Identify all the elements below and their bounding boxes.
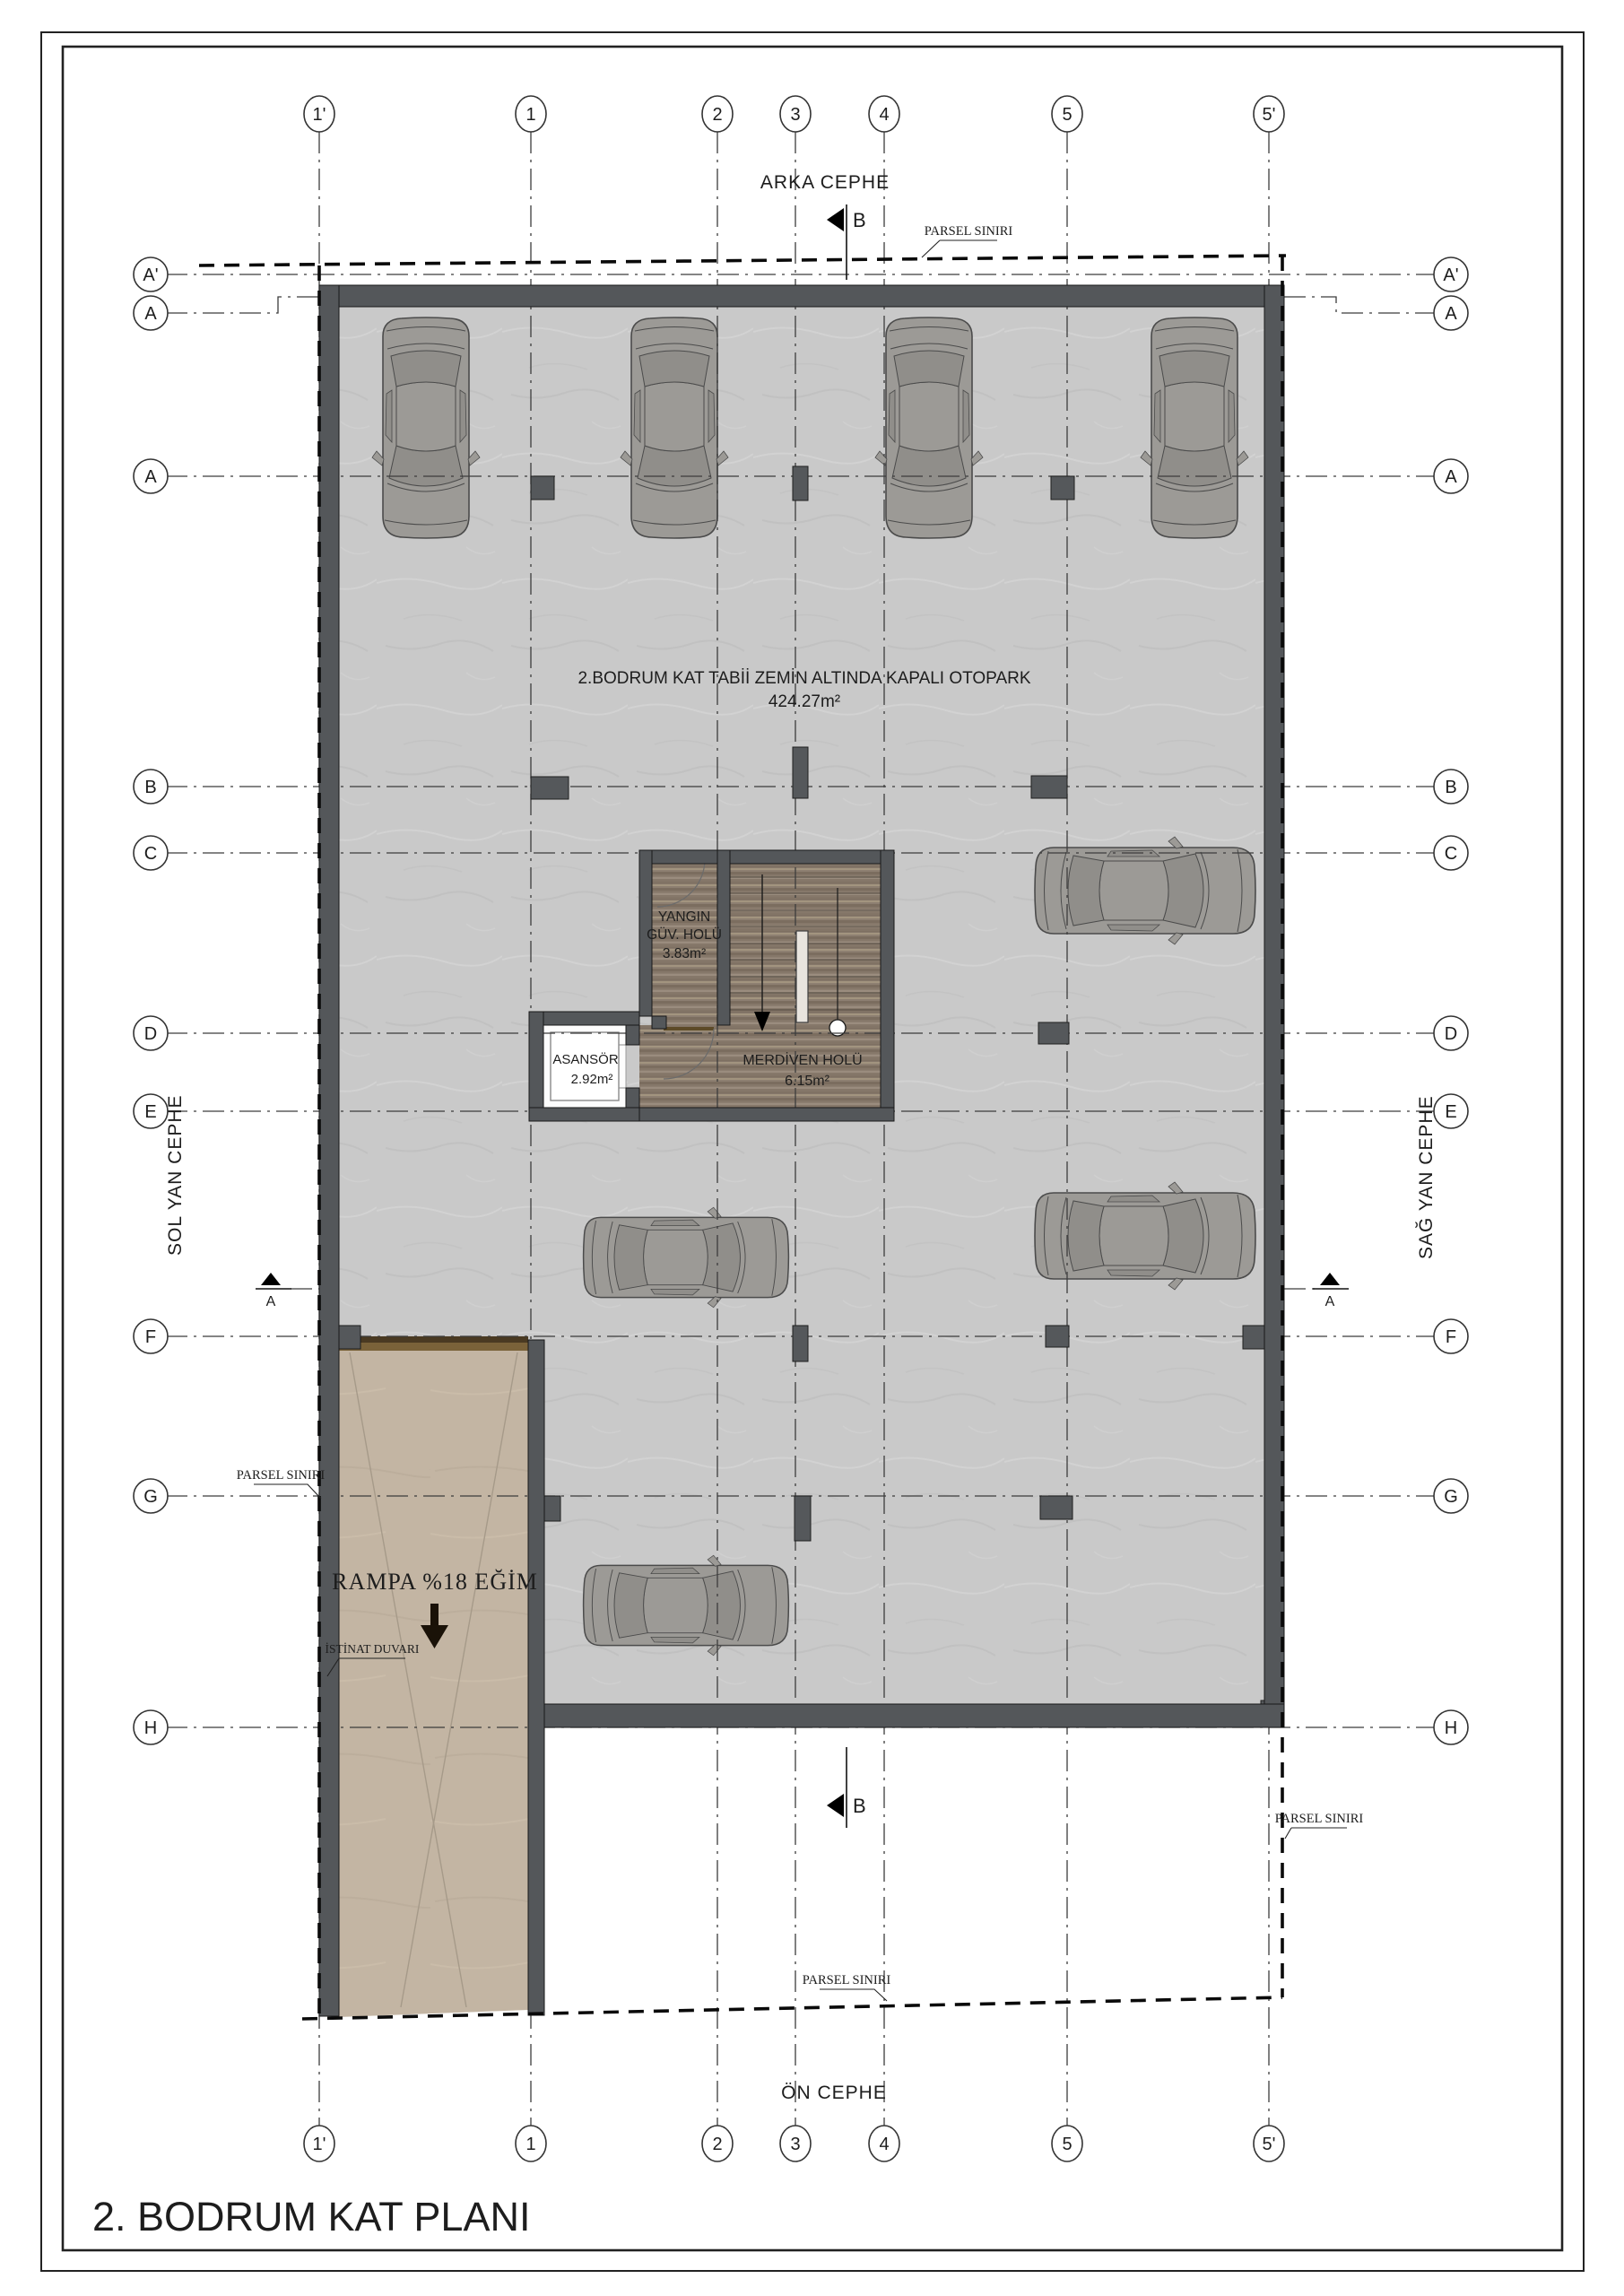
drawing-sheet: 1' 1 2 3 4 5 5' 1' 1 2 3 4 5 5' A' A A B…	[0, 0, 1624, 2296]
grid-label: 1	[525, 2135, 535, 2154]
sheet-title: 2. BODRUM KAT PLANI	[92, 2194, 530, 2239]
room-name: MERDİVEN HOLÜ	[743, 1051, 862, 1068]
yangin-floor	[652, 864, 717, 1025]
section-label: A	[266, 1294, 276, 1309]
grid-label: 3	[790, 2135, 800, 2154]
ramp-inner-wall	[528, 1340, 544, 2015]
grid-label: 5	[1062, 2135, 1072, 2154]
grid-bubble: 5'	[1254, 2126, 1284, 2161]
room-area: 3.83m²	[663, 946, 706, 961]
leader-text: PARSEL SINIRI	[237, 1468, 326, 1483]
facade-label-left: SOL YAN CEPHE	[165, 1094, 186, 1256]
section-marker-b-top: B	[827, 204, 866, 280]
grid-bubble: 2	[702, 96, 733, 132]
grid-label: B	[144, 778, 156, 797]
room-name: ASANSÖR	[552, 1051, 619, 1067]
grid-bubbles-left: A' A A B C D E F G H	[134, 257, 168, 1744]
grid-bubble: A'	[1434, 257, 1468, 291]
room-area: 6.15m²	[785, 1074, 829, 1089]
leader-text: PARSEL SINIRI	[925, 224, 1013, 239]
grid-bubble: 4	[869, 96, 899, 132]
grid-bubble: G	[134, 1479, 168, 1513]
grid-label: 5	[1062, 105, 1072, 125]
otopark-area: 424.27m²	[769, 692, 840, 711]
grid-bubble: A'	[134, 257, 168, 291]
grid-bubble: 4	[869, 2126, 899, 2161]
grid-label: G	[143, 1487, 158, 1507]
grid-bubble: 3	[780, 96, 811, 132]
grid-label: A'	[143, 265, 158, 285]
section-label: B	[853, 209, 866, 231]
grid-bubble: G	[1434, 1479, 1468, 1513]
parsel-label-bottom: PARSEL SINIRI	[803, 1973, 891, 2001]
grid-bubble: 1'	[304, 96, 334, 132]
grid-label: G	[1444, 1487, 1458, 1507]
grid-bubble: F	[134, 1319, 168, 1353]
grid-bubble: D	[1434, 1016, 1468, 1050]
car	[584, 1555, 789, 1656]
grid-bubble: A	[134, 459, 168, 493]
grid-label: A'	[1443, 265, 1458, 285]
grid-label: A	[1445, 304, 1457, 324]
car	[372, 317, 480, 538]
stair-rail	[796, 931, 808, 1022]
grid-label: C	[1445, 844, 1457, 864]
section-label: A	[1325, 1294, 1335, 1309]
grid-label: C	[144, 844, 157, 864]
floor-plan-svg: 1' 1 2 3 4 5 5' 1' 1 2 3 4 5 5' A' A A B…	[0, 0, 1624, 2296]
leader-text: İSTİNAT DUVARI	[326, 1642, 420, 1656]
leader-text: PARSEL SINIRI	[1275, 1812, 1364, 1826]
grid-bubble: 3	[780, 2126, 811, 2161]
wall-top	[319, 285, 1284, 307]
grid-bubble: E	[1434, 1094, 1468, 1128]
car	[584, 1207, 789, 1308]
section-label: B	[853, 1795, 866, 1817]
parsel-label-right: PARSEL SINIRI	[1275, 1812, 1364, 1839]
wall-left	[319, 285, 339, 2016]
section-arrow-icon	[261, 1273, 281, 1285]
grid-label: 1'	[313, 2135, 326, 2154]
section-marker-b-bottom: B	[827, 1747, 866, 1828]
grid-bubble: A	[134, 296, 168, 330]
car	[875, 317, 983, 538]
car	[1141, 317, 1248, 538]
grid-bubble: H	[134, 1710, 168, 1744]
grid-bubble: 5	[1052, 96, 1082, 132]
facade-label-back: ARKA CEPHE	[760, 172, 890, 193]
grid-label: A	[1445, 467, 1457, 487]
grid-bubble: A	[1434, 296, 1468, 330]
parsel-label-top: PARSEL SINIRI	[922, 224, 1012, 257]
section-arrow-icon	[1320, 1273, 1340, 1285]
grid-label: 4	[879, 2135, 889, 2154]
grid-bubble: B	[1434, 770, 1468, 804]
grid-label: 1'	[313, 105, 326, 125]
grid-label: 1	[525, 105, 535, 125]
grid-label: 2	[712, 105, 722, 125]
leader-text: PARSEL SINIRI	[803, 1973, 891, 1987]
grid-label: A	[144, 467, 157, 487]
grid-bubbles-bottom: 1' 1 2 3 4 5 5'	[304, 2126, 1284, 2161]
car	[621, 317, 728, 538]
grid-label: E	[144, 1102, 156, 1122]
room-name: YANGIN	[658, 909, 710, 925]
facade-label-front: ÖN CEPHE	[781, 2083, 887, 2103]
grid-label: B	[1445, 778, 1456, 797]
grid-bubble: 5	[1052, 2126, 1082, 2161]
grid-bubble: C	[134, 836, 168, 870]
grid-label: F	[145, 1327, 156, 1347]
grid-bubble: 1	[516, 2126, 546, 2161]
grid-label: 5'	[1263, 2135, 1276, 2154]
grid-label: 5'	[1263, 105, 1276, 125]
grid-label: 2	[712, 2135, 722, 2154]
room-name: GÜV. HOLÜ	[647, 926, 722, 943]
grid-label: A	[144, 304, 157, 324]
facade-label-right: SAĞ YAN CEPHE	[1416, 1095, 1437, 1259]
room-area: 2.92m²	[571, 1072, 613, 1087]
grid-label: D	[1445, 1024, 1457, 1044]
grid-label: F	[1446, 1327, 1456, 1347]
grid-bubbles-right: A' A A B C D E F G H	[1434, 257, 1468, 1744]
ramp	[339, 1336, 528, 2017]
grid-bubble: A	[1434, 459, 1468, 493]
grid-label: H	[144, 1718, 157, 1738]
grid-label: H	[1445, 1718, 1457, 1738]
wall-right	[1264, 285, 1284, 1727]
grid-bubble: 1	[516, 96, 546, 132]
section-arrow-icon	[827, 208, 844, 231]
grid-bubble: 1'	[304, 2126, 334, 2161]
grid-bubble: C	[1434, 836, 1468, 870]
grid-bubbles-top: 1' 1 2 3 4 5 5'	[304, 96, 1284, 132]
section-marker-a-right: A	[1313, 1273, 1349, 1309]
grid-bubble: H	[1434, 1710, 1468, 1744]
section-marker-a-left: A	[256, 1273, 291, 1309]
ramp-edge-band	[339, 1336, 528, 1343]
grid-label: E	[1445, 1102, 1456, 1122]
wall-bottom	[528, 1704, 1284, 1727]
grid-label: 4	[879, 105, 889, 125]
grid-bubble: 2	[702, 2126, 733, 2161]
grid-bubble: E	[134, 1094, 168, 1128]
otopark-title: 2.BODRUM KAT TABİİ ZEMİN ALTINDA KAPALI …	[578, 669, 1030, 688]
grid-bubble: 5'	[1254, 96, 1284, 132]
grid-label: 3	[790, 105, 800, 125]
car	[1035, 1182, 1255, 1290]
grid-label: D	[144, 1024, 157, 1044]
core-floors	[639, 864, 881, 1108]
grid-bubble: F	[1434, 1319, 1468, 1353]
parsel-label-left: PARSEL SINIRI	[237, 1468, 326, 1499]
grid-bubble: D	[134, 1016, 168, 1050]
grid-bubble: B	[134, 770, 168, 804]
section-arrow-icon	[827, 1794, 844, 1817]
ramp-text: RAMPA %18 EĞİM	[332, 1569, 538, 1595]
